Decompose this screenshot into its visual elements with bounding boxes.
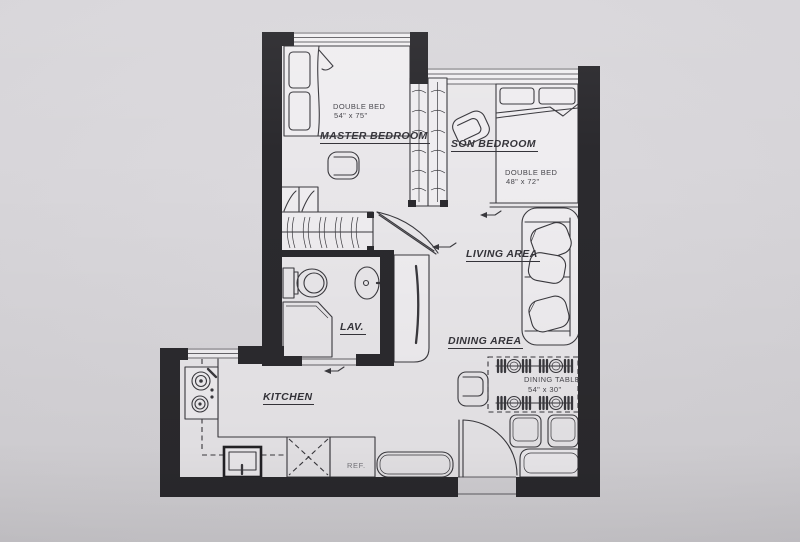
lavatory-label: LAV. (340, 321, 366, 335)
master-closet (280, 212, 373, 252)
master-bed-label: DOUBLE BED (333, 102, 385, 111)
floorplan-drawing (0, 0, 800, 542)
entry-bench (520, 449, 578, 477)
stove (185, 367, 218, 419)
master-bed-size: 54" x 75" (334, 111, 368, 120)
window-son (428, 68, 578, 84)
master-bedroom-label: MASTER BEDROOM (320, 130, 430, 144)
master-dresser (280, 187, 318, 215)
kitchen-sink (224, 447, 261, 477)
kitchen-label: KITCHEN (263, 391, 314, 405)
window-kitchen (186, 348, 238, 359)
master-bed (284, 46, 410, 136)
son-bed-label: DOUBLE BED (505, 168, 557, 177)
sofa (522, 208, 579, 345)
dining-table-size: 54" x 30" (528, 385, 562, 394)
son-bedroom-label: SON BEDROOM (451, 138, 538, 152)
tall-cabinet (394, 255, 429, 362)
son-bed-size: 48" x 72" (506, 177, 540, 186)
dining-table-label: DINING TABLE (524, 375, 580, 384)
dining-area-label: DINING AREA (448, 335, 523, 349)
floorplan-photo: DOUBLE BED 54" x 75" MASTER BEDROOM SON … (0, 0, 800, 542)
window-master (292, 32, 410, 46)
refrigerator-label: REF. (347, 461, 366, 470)
living-area-label: LIVING AREA (466, 248, 540, 262)
